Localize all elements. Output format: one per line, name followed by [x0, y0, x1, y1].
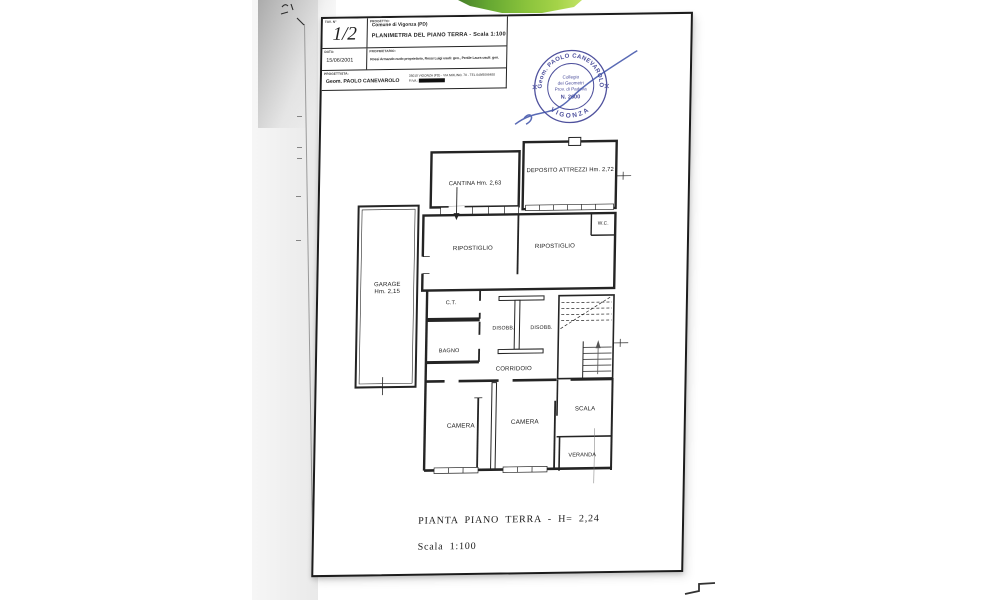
garage-height: Hm. 2,15: [374, 289, 401, 296]
room-label-garage: GARAGE Hm. 2,15: [374, 282, 401, 296]
fold-tick: [297, 158, 302, 159]
room-label-disobb-left: DISOBB.: [492, 325, 514, 331]
room-label-ct: C.T.: [446, 300, 456, 306]
room-label-disobb-right: DISOBB.: [530, 325, 552, 331]
fold-tick: [296, 196, 301, 197]
scanned-floorplan-page: TAV. N° 1/2 PROGETTO: Comune di Vigonza …: [0, 0, 1000, 600]
room-label-corridoio: CORRIDOIO: [496, 366, 532, 373]
corner-scribble-mark: [278, 0, 312, 32]
fold-tick: [297, 147, 302, 148]
room-label-veranda: VERANDA: [568, 452, 596, 458]
fold-tick: [296, 240, 301, 241]
floor-plan-walls: [313, 14, 691, 575]
room-label-wc: W.C.: [598, 222, 609, 227]
room-label-cantina: CANTINA Hm. 2,63: [449, 180, 502, 187]
room-label-scala: SCALA: [575, 406, 596, 412]
room-label-deposito: DEPOSITO ATTREZZI Hm. 2,72: [526, 167, 614, 174]
room-label-bagno: BAGNO: [439, 348, 460, 354]
paper-corner-mark: [684, 582, 720, 598]
room-label-ripostiglio-right: RIPOSTIGLIO: [535, 243, 575, 250]
room-label-ripostiglio-left: RIPOSTIGLIO: [453, 246, 493, 253]
plan-caption-scale: Scala 1:100: [418, 541, 477, 553]
drawing-sheet: TAV. N° 1/2 PROGETTO: Comune di Vigonza …: [311, 12, 693, 577]
room-label-camera-right: CAMERA: [511, 418, 539, 425]
room-label-camera-left: CAMERA: [447, 422, 475, 429]
fold-tick: [297, 116, 302, 117]
